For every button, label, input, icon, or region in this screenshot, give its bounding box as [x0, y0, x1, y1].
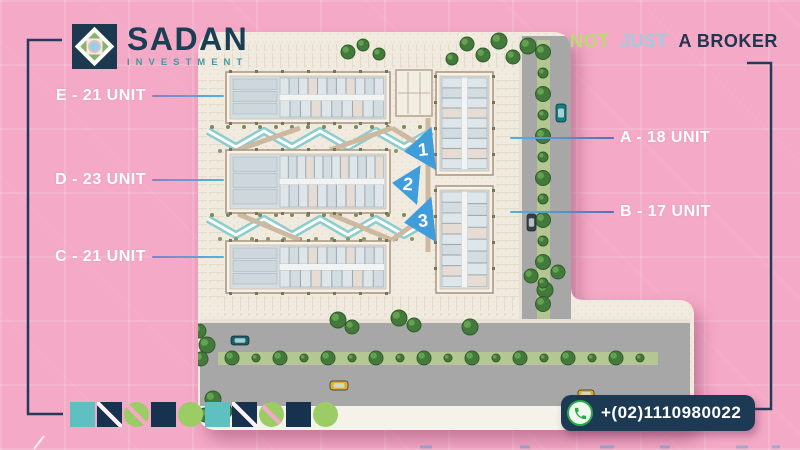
unit-label-d-line	[152, 179, 224, 182]
decor-chip-3	[124, 402, 149, 427]
unit-label-a: A - 18 UNIT	[510, 128, 710, 148]
unit-label-e-text: E - 21 UNIT	[54, 87, 146, 105]
unit-label-e-line	[152, 95, 224, 98]
brand-subtitle: INVESTMENT	[127, 57, 248, 68]
unit-label-c-line	[152, 256, 224, 259]
unit-label-a-text: A - 18 UNIT	[620, 129, 710, 147]
unit-label-b-text: B - 17 UNIT	[620, 203, 711, 221]
decor-chip-10	[313, 402, 338, 427]
decor-chip-1	[70, 402, 95, 427]
decor-chip-9	[286, 402, 311, 427]
tagline-word-not: NOT	[570, 31, 610, 51]
tagline-word-a-broker: A BROKER	[679, 31, 778, 51]
building-b	[436, 186, 493, 293]
brand-name: SADAN	[127, 24, 248, 54]
decor-chips-row	[70, 402, 338, 427]
decor-chip-7	[232, 402, 257, 427]
unit-label-a-line	[510, 137, 614, 140]
phone-icon	[567, 400, 593, 426]
tagline-word-just: JUST	[620, 31, 668, 51]
parking-right	[496, 74, 520, 304]
decor-chip-8	[259, 402, 284, 427]
unit-label-c: C - 21 UNIT	[54, 247, 224, 267]
building-c	[226, 241, 390, 293]
unit-label-d-text: D - 23 UNIT	[54, 171, 146, 189]
brand-logo: SADAN INVESTMENT	[72, 24, 248, 69]
unit-label-b-line	[510, 211, 614, 214]
tagline: NOT JUST A BROKER	[570, 31, 778, 52]
building-d	[226, 150, 390, 213]
phone-badge[interactable]: +(02)1110980022	[561, 395, 755, 431]
unit-label-e: E - 21 UNIT	[54, 86, 224, 106]
decor-chip-2	[97, 402, 122, 427]
decor-chip-5	[178, 402, 203, 427]
parking-bottom	[218, 296, 518, 316]
advert-canvas: SADAN INVESTMENT NOT JUST A BROKER E - 2…	[0, 0, 800, 450]
building-e	[226, 72, 390, 123]
service-block	[396, 70, 432, 116]
building-a	[436, 72, 493, 175]
decor-chip-4	[151, 402, 176, 427]
phone-number: +(02)1110980022	[601, 403, 741, 423]
decor-chip-6	[205, 402, 230, 427]
unit-label-b: B - 17 UNIT	[510, 202, 711, 222]
sadan-logo-icon	[72, 24, 117, 69]
unit-label-d: D - 23 UNIT	[54, 170, 224, 190]
unit-label-c-text: C - 21 UNIT	[54, 248, 146, 266]
